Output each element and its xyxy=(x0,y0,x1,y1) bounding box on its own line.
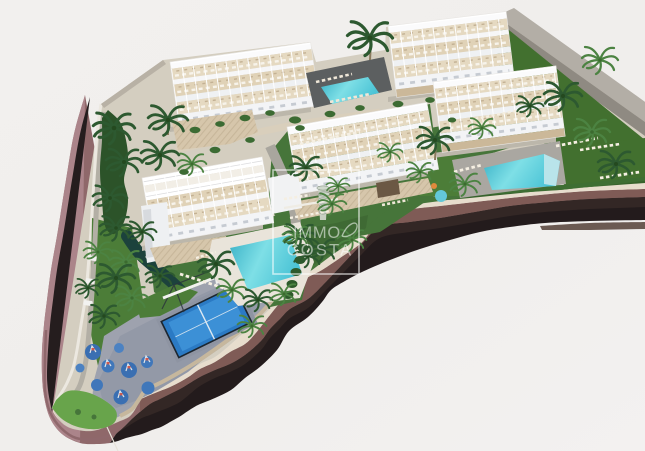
svg-text:IMMO: IMMO xyxy=(293,224,341,242)
svg-text:COSTA: COSTA xyxy=(287,242,354,260)
